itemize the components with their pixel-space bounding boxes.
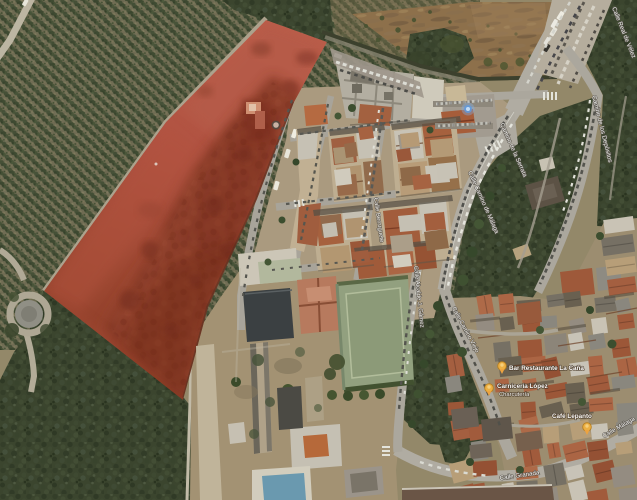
svg-text:Carnicería López: Carnicería López bbox=[497, 383, 548, 390]
svg-text:Café Lepanto: Café Lepanto bbox=[552, 413, 592, 420]
svg-text:Bar Restaurante La Caña: Bar Restaurante La Caña bbox=[509, 365, 584, 372]
svg-text:Charcutería: Charcutería bbox=[499, 392, 530, 398]
